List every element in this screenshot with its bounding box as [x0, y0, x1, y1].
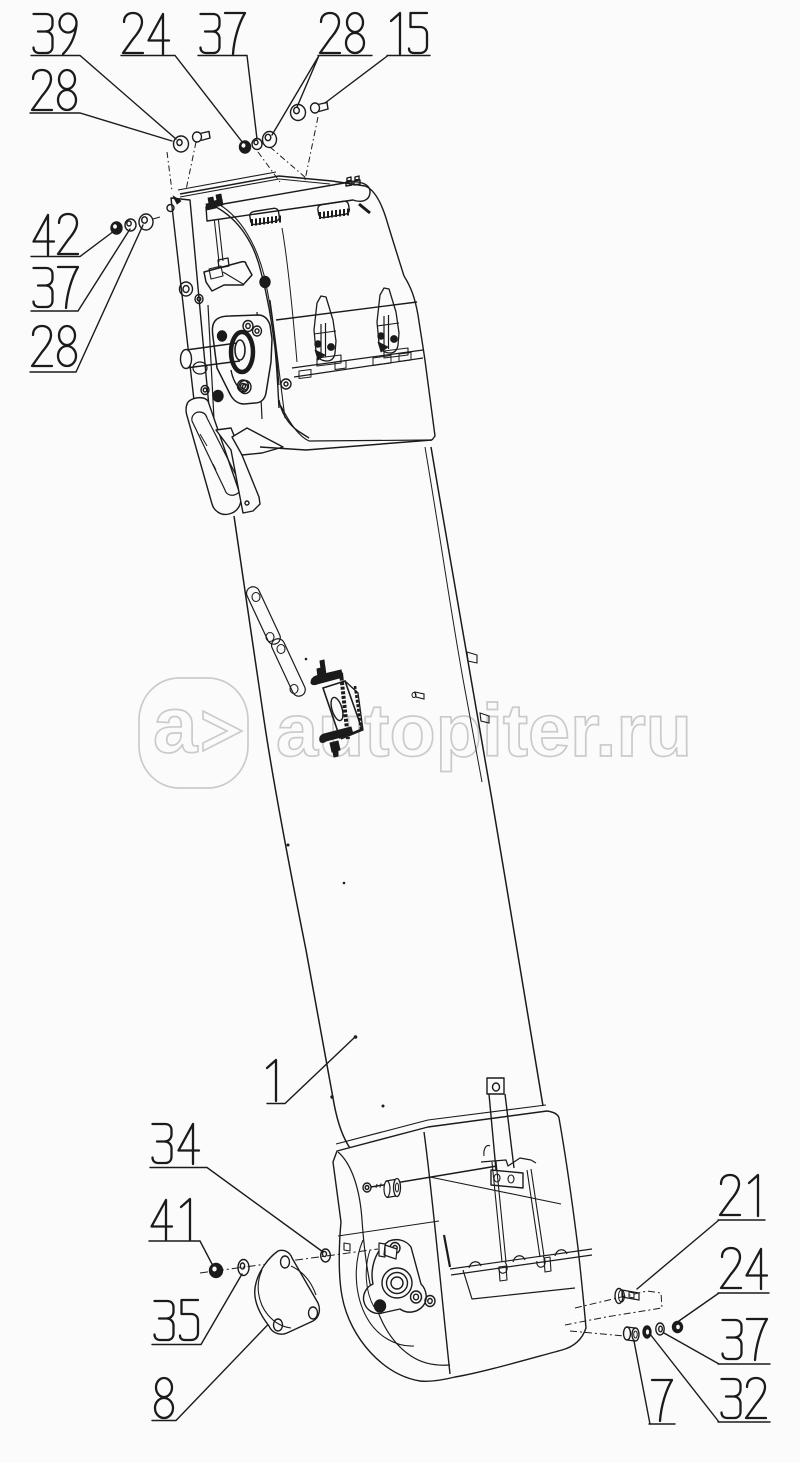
svg-text:a: a: [153, 680, 198, 769]
